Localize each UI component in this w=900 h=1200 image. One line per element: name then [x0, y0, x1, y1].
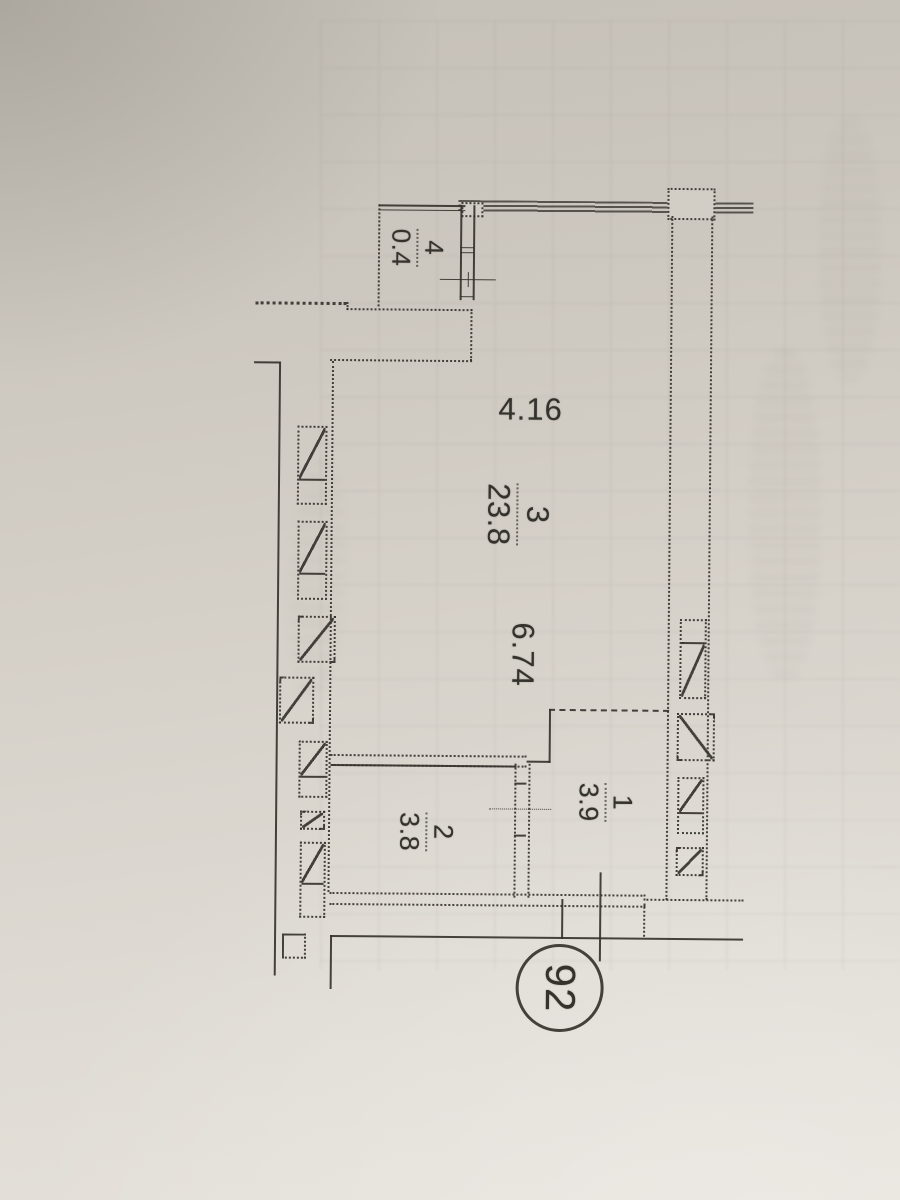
- door-jamb-tick: [514, 835, 526, 837]
- vent-shaft-box: [299, 842, 326, 918]
- left-wall-outer-line: [274, 361, 281, 975]
- dimension-label-vertical: 6.74: [504, 622, 541, 687]
- room-area: 3.8: [394, 812, 423, 851]
- left-wall-top-tick: [254, 361, 280, 363]
- pillar-block: [667, 188, 715, 220]
- room-4-label: 4 0.4: [387, 229, 448, 267]
- room-number: 1: [608, 795, 636, 811]
- room-2-label: 2 3.8: [394, 812, 457, 852]
- right-wall-bottom-step: [643, 904, 645, 937]
- partition-step-horizontal: [527, 761, 551, 763]
- room-number: 3: [521, 506, 554, 524]
- vent-shaft-box: [676, 847, 704, 876]
- section-line-horizontal: [330, 935, 743, 941]
- room-area: 23.8: [482, 483, 515, 546]
- fraction-divider: [604, 783, 606, 822]
- vent-shaft-box: [297, 521, 328, 600]
- room-number: 4: [420, 240, 447, 255]
- neighbour-wall-line: [256, 301, 347, 305]
- niche-left-line: [378, 204, 381, 306]
- fraction-divider: [416, 229, 418, 267]
- window-tick: [460, 296, 474, 297]
- partition-step-vertical: [549, 709, 551, 763]
- room-number: 2: [429, 824, 457, 840]
- room-3-label: 3 23.8: [482, 483, 554, 546]
- door-jamb-tick: [514, 783, 526, 785]
- apartment-number-leader-line: [599, 872, 602, 961]
- dimension-cross-tick: [468, 272, 469, 287]
- vent-shaft-box: [298, 741, 327, 798]
- wall-block-bottom-line: [330, 359, 472, 362]
- leader-tick: [561, 899, 563, 939]
- fraction-divider: [516, 483, 519, 545]
- wall-block-top-line: [347, 308, 473, 311]
- apartment-number-circle: 92: [515, 944, 604, 1033]
- right-wall-inner-line: [705, 216, 713, 900]
- fraction-divider: [425, 812, 427, 851]
- niche-top-inner-line: [378, 209, 465, 211]
- bottom-wall: [329, 892, 645, 908]
- vent-shaft-box: [297, 616, 335, 663]
- window-tick: [460, 247, 474, 248]
- room-area: 0.4: [387, 229, 415, 267]
- dimension-label-horizontal: 4.16: [498, 391, 563, 428]
- vent-shaft-box: [679, 619, 707, 699]
- section-line-vertical: [330, 935, 332, 989]
- apartment-plan: 92 4 0.4 3 23.8 2 3.8 1 3.9 4.16 6.74: [0, 0, 900, 1200]
- room2-top-line: [331, 764, 517, 768]
- wall-end-box: [282, 934, 306, 959]
- opening-dashed-line: [549, 709, 669, 712]
- vent-shaft-box: [677, 713, 715, 761]
- wall-block-right-line: [470, 309, 472, 361]
- niche-top-line: [378, 204, 465, 207]
- vent-shaft-box: [297, 426, 328, 505]
- right-wall-outer-line: [665, 216, 673, 900]
- room-area: 3.9: [574, 783, 603, 822]
- vent-shaft-box: [300, 811, 325, 830]
- window-tick: [460, 252, 474, 253]
- right-wall-bottom-cap: [643, 899, 743, 902]
- vent-shaft-box: [677, 777, 704, 834]
- floor-plan-photo: 92 4 0.4 3 23.8 2 3.8 1 3.9 4.16 6.74: [0, 0, 900, 1200]
- apartment-number: 92: [535, 963, 583, 1012]
- room-1-label: 1 3.9: [574, 783, 637, 823]
- vent-shaft-box: [279, 677, 314, 724]
